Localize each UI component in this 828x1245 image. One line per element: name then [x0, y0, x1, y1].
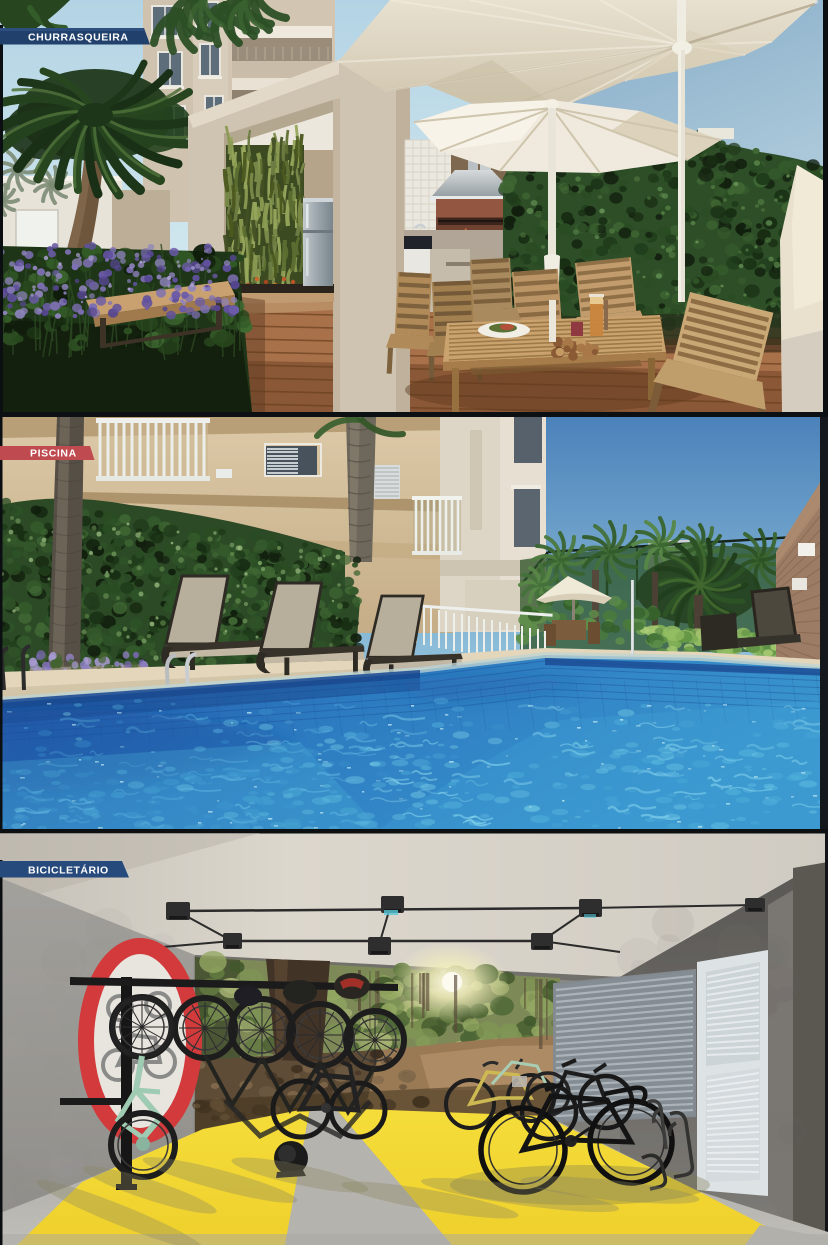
svg-text:CHURRASQUEIRA: CHURRASQUEIRA — [28, 32, 129, 44]
svg-text:PISCINA: PISCINA — [30, 448, 77, 460]
svg-text:BICICLETÁRIO: BICICLETÁRIO — [28, 864, 109, 877]
